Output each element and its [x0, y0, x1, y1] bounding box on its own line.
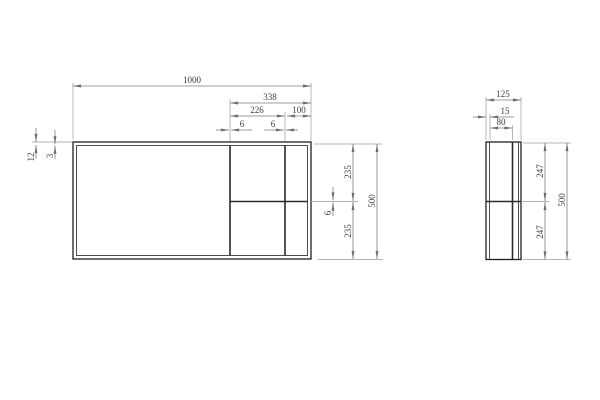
dim-front-lower-opening: 235 — [343, 224, 353, 238]
dim-front-divider1-thickness: 6 — [240, 119, 245, 129]
dim-front-upper-opening: 235 — [343, 165, 353, 179]
dim-front-overall-width: 1000 — [183, 75, 202, 85]
dim-side-wall-thickness: 15 — [501, 106, 511, 116]
dim-side-lower-opening: 247 — [535, 225, 545, 239]
dim-front-bay-width: 338 — [263, 92, 277, 102]
dim-side-inner-depth: 80 — [497, 117, 507, 127]
front-top-dimensions: 1000 338 226 100 6 6 — [73, 75, 311, 130]
technical-drawing: 1000 338 226 100 6 6 12 3 235 — [0, 0, 600, 400]
dim-front-bay-inner-width: 226 — [250, 105, 264, 115]
technical-drawing-canvas: 1000 338 226 100 6 6 12 3 235 — [0, 0, 600, 400]
dim-front-right-bay-width: 100 — [292, 105, 306, 115]
side-view-outline — [486, 142, 521, 260]
dim-front-top-wall: 12 — [26, 153, 36, 162]
dim-side-overall-height: 500 — [557, 193, 567, 207]
front-view-outline — [73, 142, 311, 259]
dim-front-top-wall-inner: 3 — [45, 153, 55, 158]
side-top-dimensions: 125 15 80 — [473, 89, 521, 128]
dim-front-shelf-thickness: 6 — [323, 210, 333, 215]
front-view: 1000 338 226 100 6 6 12 3 235 — [26, 75, 383, 260]
side-view: 125 15 80 247 247 500 — [473, 89, 571, 260]
front-left-dimensions: 12 3 — [26, 128, 55, 162]
dim-side-depth: 125 — [496, 89, 510, 99]
front-view-dividers — [230, 146, 308, 256]
front-extension-lines — [32, 83, 383, 260]
dim-side-upper-opening: 247 — [535, 164, 545, 178]
dim-front-overall-height: 500 — [367, 194, 377, 208]
dim-front-divider2-thickness: 6 — [271, 119, 276, 129]
